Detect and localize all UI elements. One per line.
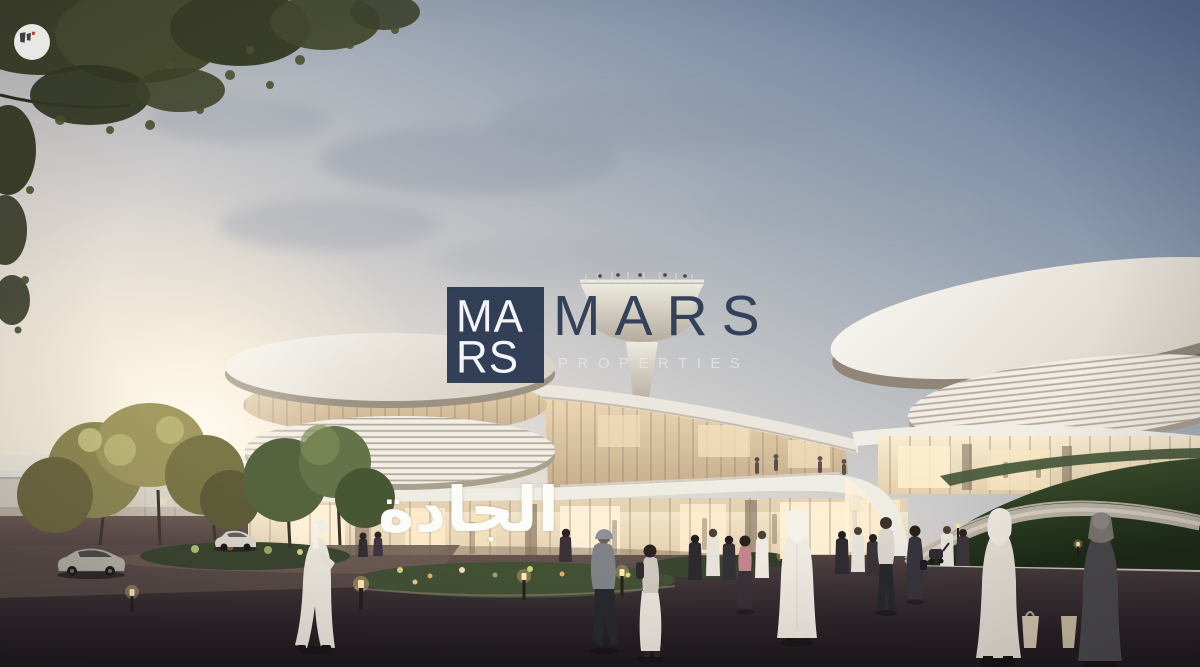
mars-properties-logo: MA RS MARS PROPERTIES (447, 287, 774, 383)
corner-watermark-badge (14, 24, 50, 60)
mars-wordmark: MARS (553, 288, 774, 345)
red-accent-dot (32, 32, 35, 35)
mars-logo-text: MARS PROPERTIES (553, 287, 774, 383)
architectural-render-scene: الجادة MA RS MARS PROPERTIES (0, 0, 1200, 667)
mars-subtitle: PROPERTIES (553, 355, 774, 372)
mars-logo-monogram: MA RS (447, 287, 544, 383)
w-monogram-icon (14, 24, 40, 50)
building-arabic-sign: الجادة (378, 476, 593, 544)
monogram-line-2: RS (456, 337, 544, 380)
